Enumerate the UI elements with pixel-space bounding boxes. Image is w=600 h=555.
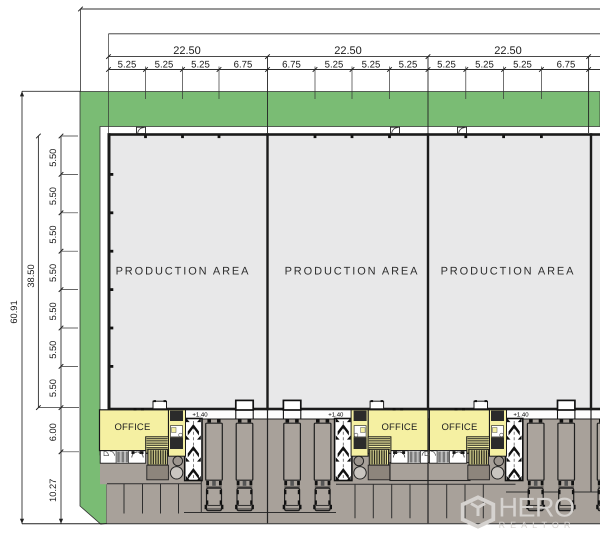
svg-text:5.50: 5.50 — [48, 225, 58, 243]
svg-text:REALTOR: REALTOR — [499, 520, 576, 530]
svg-text:5.25: 5.25 — [475, 59, 494, 70]
svg-text:5.50: 5.50 — [48, 341, 58, 359]
svg-text:5.50: 5.50 — [48, 264, 58, 282]
svg-text:HERO: HERO — [498, 493, 574, 523]
svg-text:22.50: 22.50 — [494, 45, 522, 57]
svg-text:5.50: 5.50 — [48, 149, 58, 167]
svg-text:5.25: 5.25 — [118, 59, 137, 70]
svg-text:5.50: 5.50 — [48, 302, 58, 320]
svg-text:PRODUCTION AREA: PRODUCTION AREA — [285, 266, 420, 278]
svg-text:22.50: 22.50 — [173, 45, 201, 57]
svg-text:+1.40: +1.40 — [513, 411, 529, 418]
svg-text:5.25: 5.25 — [399, 59, 418, 70]
svg-text:5.50: 5.50 — [48, 379, 58, 397]
svg-text:PRODUCTION AREA: PRODUCTION AREA — [116, 266, 251, 278]
svg-text:38.50: 38.50 — [26, 264, 36, 287]
svg-text:5.25: 5.25 — [191, 59, 210, 70]
svg-text:+1.40: +1.40 — [192, 411, 208, 418]
svg-text:+1.40: +1.40 — [328, 411, 344, 418]
svg-text:6.00: 6.00 — [48, 423, 58, 441]
svg-text:60.91: 60.91 — [9, 300, 19, 323]
svg-text:OFFICE: OFFICE — [381, 422, 417, 433]
svg-text:5.25: 5.25 — [155, 59, 174, 70]
svg-text:OFFICE: OFFICE — [441, 422, 477, 433]
svg-text:5.25: 5.25 — [437, 59, 456, 70]
svg-text:6.75: 6.75 — [557, 59, 576, 70]
svg-text:10.27: 10.27 — [48, 479, 58, 502]
svg-text:5.25: 5.25 — [362, 59, 381, 70]
svg-text:OFFICE: OFFICE — [114, 422, 150, 433]
svg-text:5.50: 5.50 — [48, 187, 58, 205]
svg-text:PRODUCTION AREA: PRODUCTION AREA — [441, 266, 576, 278]
svg-text:22.50: 22.50 — [334, 45, 362, 57]
svg-text:6.75: 6.75 — [234, 59, 253, 70]
svg-text:6.75: 6.75 — [282, 59, 301, 70]
svg-text:5.25: 5.25 — [513, 59, 532, 70]
svg-text:5.25: 5.25 — [325, 59, 344, 70]
